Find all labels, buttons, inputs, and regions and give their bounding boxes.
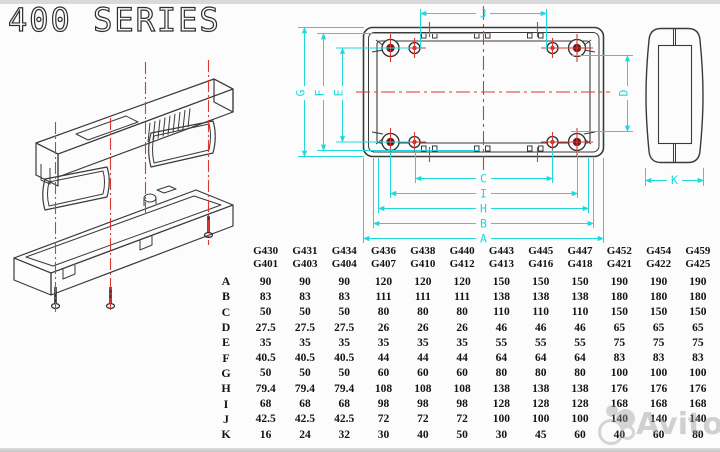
table-cell: 83 [600,350,639,365]
table-cell: 111 [442,289,481,304]
column-header: G434G404 [325,245,364,274]
table-cell: 64 [482,350,521,365]
table-cell: 50 [285,366,324,381]
dim-label-b: B [480,217,487,231]
table-cell: 128 [560,396,599,411]
table-cell: 168 [600,396,639,411]
table-cell: 50 [325,305,364,320]
side-view: K [646,29,704,188]
table-cell: 30 [482,427,521,442]
table-cell: 90 [325,274,364,289]
table-cell: 190 [600,274,639,289]
table-cell: 98 [364,396,403,411]
column-header: G459G425 [678,245,717,274]
table-cell: 75 [639,335,678,350]
table-cell: 72 [364,412,403,427]
table-cell: 108 [442,381,481,396]
table-cell: 40.5 [325,350,364,365]
table-cell: 98 [403,396,442,411]
table-cell: 60 [403,366,442,381]
row-label: D [206,320,246,335]
table-cell: 50 [246,305,285,320]
table-row: I686868989898128128128168168168 [206,396,718,411]
table-cell: 50 [442,427,481,442]
table-cell: 120 [403,274,442,289]
table-cell: 100 [639,366,678,381]
table-cell: 150 [600,305,639,320]
table-cell: 44 [442,350,481,365]
table-cell: 120 [364,274,403,289]
table-cell: 110 [560,305,599,320]
table-cell: 80 [442,305,481,320]
table-cell: 27.5 [325,320,364,335]
table-cell: 100 [600,366,639,381]
table-cell: 27.5 [246,320,285,335]
table-cell: 190 [678,274,717,289]
table-cell: 180 [600,289,639,304]
table-cell: 42.5 [325,412,364,427]
table-cell: 138 [560,289,599,304]
row-label: G [206,366,246,381]
table-cell: 72 [442,412,481,427]
column-header: G443G413 [482,245,521,274]
table-cell: 100 [521,412,560,427]
table-cell: 180 [639,289,678,304]
table-cell: 65 [600,320,639,335]
exploded-bottom-tray [14,186,233,295]
table-cell: 44 [403,350,442,365]
table-cell: 35 [325,335,364,350]
table-cell: 42.5 [285,412,324,427]
table-cell: 180 [678,289,717,304]
table-cell: 60 [639,427,678,442]
table-cell: 140 [600,412,639,427]
table-cell: 138 [560,381,599,396]
table-cell: 90 [246,274,285,289]
table-row: D27.527.527.5262626464646656565 [206,320,718,335]
exploded-end-panel-left [43,167,110,210]
dim-label-j: J [480,7,487,21]
table-cell: 138 [521,289,560,304]
table-cell: 176 [678,381,717,396]
table-cell: 60 [560,427,599,442]
table-cell: 79.4 [285,381,324,396]
table-cell: 50 [325,366,364,381]
table-cell: 55 [482,335,521,350]
table-cell: 40 [600,427,639,442]
table-cell: 79.4 [325,381,364,396]
column-header: G431G403 [285,245,324,274]
table-cell: 72 [403,412,442,427]
table-cell: 45 [521,427,560,442]
table-cell: 26 [442,320,481,335]
column-header: G454G422 [639,245,678,274]
table-cell: 44 [364,350,403,365]
table-row: F40.540.540.5444444646464838383 [206,350,718,365]
table-cell: 68 [325,396,364,411]
column-header: G436G407 [364,245,403,274]
table-cell: 150 [678,305,717,320]
table-cell: 79.4 [246,381,285,396]
table-row: A909090120120120150150150190190190 [206,274,718,289]
table-cell: 80 [521,366,560,381]
table-cell: 190 [639,274,678,289]
row-label: C [206,305,246,320]
row-label: H [206,381,246,396]
table-cell: 24 [285,427,324,442]
column-header: G438G410 [403,245,442,274]
dim-label-i: I [480,187,487,201]
table-cell: 150 [482,274,521,289]
table-cell: 108 [364,381,403,396]
column-header: G452G421 [600,245,639,274]
table-row: C505050808080110110110150150150 [206,305,718,320]
table-row: E353535353535555555757575 [206,335,718,350]
dim-label-d: D [617,89,631,96]
table-cell: 80 [560,366,599,381]
table-cell: 176 [639,381,678,396]
table-cell: 46 [482,320,521,335]
table-cell: 55 [560,335,599,350]
table-cell: 68 [246,396,285,411]
table-cell: 138 [482,289,521,304]
table-cell: 46 [560,320,599,335]
table-row: G505050606060808080100100100 [206,366,718,381]
dim-label-e: E [332,89,346,96]
table-cell: 60 [364,366,403,381]
table-cell: 50 [285,305,324,320]
table-cell: 150 [560,274,599,289]
table-cell: 35 [285,335,324,350]
table-row: B838383111111111138138138180180180 [206,289,718,304]
table-cell: 128 [482,396,521,411]
table-cell: 64 [521,350,560,365]
screws [52,216,213,308]
column-header: G430G401 [246,245,285,274]
table-cell: 46 [521,320,560,335]
table-cell: 138 [521,381,560,396]
table-cell: 83 [678,350,717,365]
table-corner [206,245,246,274]
exploded-top-cover [36,79,233,186]
table-cell: 75 [678,335,717,350]
table-cell: 83 [285,289,324,304]
table-cell: 50 [246,366,285,381]
table-cell: 128 [521,396,560,411]
dimensions-table: G430G401G431G403G434G404G436G407G438G410… [206,245,718,442]
row-label: E [206,335,246,350]
table-cell: 111 [403,289,442,304]
table-cell: 168 [678,396,717,411]
row-label: B [206,289,246,304]
table-cell: 64 [560,350,599,365]
table-cell: 83 [639,350,678,365]
table-cell: 35 [364,335,403,350]
table-cell: 98 [442,396,481,411]
table-cell: 83 [325,289,364,304]
table-cell: 176 [600,381,639,396]
table-cell: 140 [639,412,678,427]
table-cell: 90 [285,274,324,289]
table-cell: 150 [639,305,678,320]
table-cell: 80 [678,427,717,442]
table-cell: 40.5 [285,350,324,365]
table-cell: 65 [639,320,678,335]
table-cell: 35 [442,335,481,350]
table-cell: 55 [521,335,560,350]
table-cell: 65 [678,320,717,335]
column-header: G447G418 [560,245,599,274]
table-cell: 100 [482,412,521,427]
table-cell: 110 [521,305,560,320]
table-cell: 26 [403,320,442,335]
dim-label-a: A [480,232,487,246]
dim-label-h: H [480,202,487,216]
row-label: A [206,274,246,289]
column-header: G440G412 [442,245,481,274]
table-cell: 100 [678,366,717,381]
table-cell: 35 [246,335,285,350]
table-cell: 100 [560,412,599,427]
table-cell: 108 [403,381,442,396]
table-cell: 40.5 [246,350,285,365]
row-label: K [206,427,246,442]
table-cell: 110 [482,305,521,320]
row-label: J [206,412,246,427]
exploded-view [14,60,233,312]
table-cell: 30 [364,427,403,442]
column-header: G445G416 [521,245,560,274]
table-cell: 60 [442,366,481,381]
table-cell: 140 [678,412,717,427]
table-row: J42.542.542.5727272100100100140140140 [206,412,718,427]
table-cell: 68 [285,396,324,411]
row-label: F [206,350,246,365]
table-cell: 168 [639,396,678,411]
table-row: H79.479.479.4108108108138138138176176176 [206,381,718,396]
dim-label-c: C [480,172,487,186]
exploded-centerlines [56,60,209,312]
table-cell: 75 [600,335,639,350]
table-cell: 35 [403,335,442,350]
table-cell: 27.5 [285,320,324,335]
table-row: K162432304050304560406080 [206,427,718,442]
page-bottom-edge [0,448,720,452]
table-cell: 42.5 [246,412,285,427]
table-cell: 138 [482,381,521,396]
table-cell: 40 [403,427,442,442]
top-view: J G F E D C I H B A [294,6,634,246]
table-cell: 26 [364,320,403,335]
table-cell: 80 [482,366,521,381]
table-cell: 83 [246,289,285,304]
row-label: I [206,396,246,411]
dim-label-g: G [294,89,308,96]
table-cell: 80 [364,305,403,320]
catalog-page: 400 SERIES [0,0,720,452]
table-cell: 16 [246,427,285,442]
table-cell: 111 [364,289,403,304]
table-cell: 150 [521,274,560,289]
table-cell: 80 [403,305,442,320]
dim-label-k: K [671,173,678,187]
dim-label-f: F [313,89,327,96]
table-cell: 120 [442,274,481,289]
table-cell: 32 [325,427,364,442]
